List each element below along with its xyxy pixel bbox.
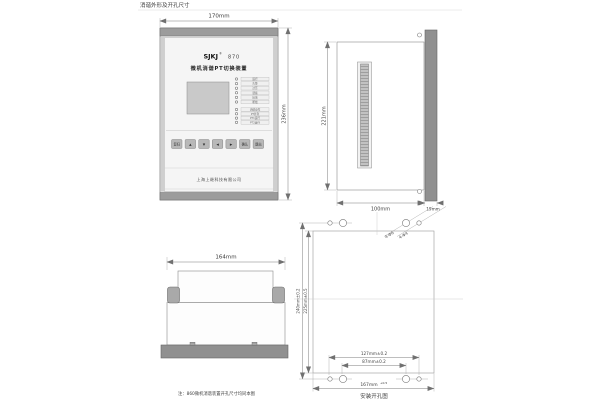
led-indicator bbox=[235, 78, 237, 80]
hole-large bbox=[339, 219, 346, 226]
flange-stud bbox=[252, 342, 257, 345]
cutout-caption: 安装开孔图 bbox=[360, 392, 388, 400]
front-width-dim: 170mm bbox=[208, 14, 229, 20]
led-indicator bbox=[235, 87, 237, 89]
top-band bbox=[160, 28, 278, 36]
side-depth-dim: 100mm bbox=[371, 207, 390, 213]
h-outer-spacing-dim: 127mm±0.2 bbox=[361, 351, 388, 356]
page-title: 消谐外形及开孔尺寸 bbox=[140, 1, 190, 9]
button-label: 退出 bbox=[255, 141, 261, 146]
side-height-dim: 221mm bbox=[322, 106, 328, 125]
model-number: 870 bbox=[228, 55, 240, 61]
led-label: 消谐动作 bbox=[250, 108, 261, 112]
led-indicator bbox=[235, 82, 237, 84]
front-bezel bbox=[425, 30, 437, 201]
led-indicator bbox=[235, 113, 237, 115]
hole-small bbox=[328, 377, 332, 381]
led-label: PT2运行 bbox=[250, 120, 260, 124]
hole-large bbox=[402, 219, 409, 226]
hole-small bbox=[417, 377, 421, 381]
device-name: 微机消谐PT切换装置 bbox=[190, 64, 248, 72]
v-cutout-dim: 225mm±0.5 bbox=[303, 288, 308, 314]
hole-large bbox=[402, 375, 409, 382]
led-label: PT1运行 bbox=[250, 116, 260, 120]
cutout-view: 4-Φ6 4-Φ4 240mm±0.2 225mm±0.5 127mm±0.2 … bbox=[294, 207, 463, 400]
company-name: 上海上继科技有限公司 bbox=[197, 176, 242, 182]
led-indicator bbox=[235, 121, 237, 123]
led-label: 过压 bbox=[252, 86, 258, 90]
led-label: PT并列 bbox=[251, 112, 260, 116]
led-indicator bbox=[235, 92, 237, 94]
registered-mark: ® bbox=[219, 52, 222, 56]
hole-small bbox=[328, 221, 332, 225]
led-indicator bbox=[235, 117, 237, 119]
button-label: 确认 bbox=[242, 141, 249, 146]
hole-large bbox=[339, 375, 346, 382]
h-inner-spacing-dim: 87mm±0.2 bbox=[362, 359, 386, 364]
case-rear bbox=[178, 271, 273, 303]
hole-small bbox=[417, 221, 421, 225]
mounting-screw bbox=[418, 190, 422, 194]
top-view: 164mm bbox=[161, 255, 288, 359]
h-cutout-tolerance: +0.5 bbox=[380, 381, 387, 385]
led-label: 告警 bbox=[252, 82, 258, 86]
front-view: 170mm 236mm SJKJ ® 870 微机消谐PT切换装置 运行 告警 … bbox=[160, 14, 292, 201]
led-label: 接地 bbox=[252, 95, 258, 99]
led-label: 谐振 bbox=[252, 91, 258, 95]
drawing-note: 注：860微机消谐装置开孔尺寸均同本图 bbox=[178, 390, 255, 397]
button-row: 复归 ▲ ▼ ◀ ▶ 确认 退出 bbox=[172, 140, 264, 149]
panel-flange bbox=[161, 345, 288, 358]
mounting-clamp-left bbox=[168, 287, 180, 303]
led-label: 断线 bbox=[252, 100, 258, 104]
right-rail bbox=[274, 37, 277, 192]
case-body bbox=[337, 42, 424, 190]
hole-callout-small: 4-Φ4 bbox=[398, 230, 409, 240]
top-width-dim: 164mm bbox=[215, 255, 236, 261]
case-front bbox=[167, 303, 285, 346]
brand-logo: SJKJ bbox=[203, 53, 218, 61]
mounting-clamp-right bbox=[273, 287, 285, 303]
h-cutout-dim: 167mm bbox=[360, 382, 377, 388]
led-indicator bbox=[235, 101, 237, 103]
side-view: 221mm 100mm 19mm bbox=[322, 30, 444, 213]
lcd-screen bbox=[187, 82, 229, 114]
left-rail bbox=[161, 37, 164, 192]
flange-stud bbox=[190, 342, 195, 345]
front-height-dim: 236mm bbox=[282, 104, 288, 123]
bottom-band bbox=[160, 193, 278, 201]
mounting-screw bbox=[418, 33, 422, 37]
v-hole-spacing-dim: 240mm±0.2 bbox=[296, 288, 301, 314]
button-label: 复归 bbox=[174, 141, 180, 146]
bezel-depth-dim: 19mm bbox=[426, 207, 440, 212]
led-indicator bbox=[235, 108, 237, 110]
terminal-strip bbox=[361, 64, 369, 166]
led-label: 运行 bbox=[252, 77, 258, 81]
dimension-drawing-page: 消谐外形及开孔尺寸 170mm 236mm SJKJ ® 870 微机消谐PT切… bbox=[0, 0, 600, 400]
drawing-canvas: 消谐外形及开孔尺寸 170mm 236mm SJKJ ® 870 微机消谐PT切… bbox=[0, 0, 600, 400]
led-indicator bbox=[235, 96, 237, 98]
